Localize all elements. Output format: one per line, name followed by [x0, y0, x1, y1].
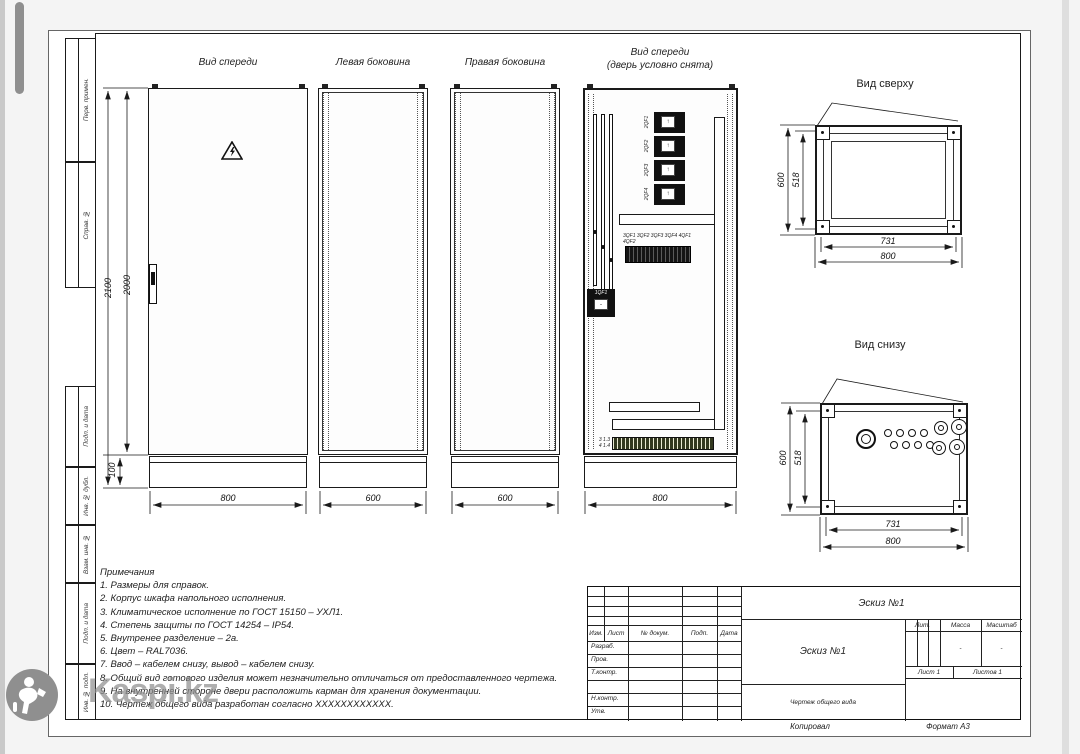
cable-gland-medium — [949, 439, 965, 455]
tb-col-data: Дата — [717, 625, 741, 641]
dim-518-bottom: 518 — [793, 441, 803, 475]
top-view — [815, 125, 962, 235]
dim-600-top: 600 — [776, 163, 786, 197]
busbar-bolt — [593, 230, 597, 234]
kopiroval-label: Копировал — [760, 722, 860, 731]
margin-label: Справ. № — [83, 210, 90, 240]
perforation-strip — [417, 93, 423, 450]
tb-doc-name: Эскиз №1 — [741, 619, 905, 684]
dim-800-top: 800 — [868, 251, 908, 261]
tb-massa-value: - — [940, 631, 981, 666]
horizontal-wiring-duct — [619, 214, 715, 225]
note-item: 3. Климатическое исполнение по ГОСТ 1515… — [100, 606, 590, 619]
terminal-block-strip — [612, 437, 714, 450]
lifting-eye — [454, 84, 460, 88]
margin-label: Перв. примен. — [83, 78, 90, 121]
tb-col-podp: Подп. — [682, 625, 717, 641]
margin-box-sprav: Справ. № — [65, 162, 96, 288]
page-right-edge[interactable] — [1062, 0, 1069, 754]
dim-518-top: 518 — [791, 163, 801, 197]
note-item: 2. Корпус шкафа напольного исполнения. — [100, 592, 590, 605]
dim-731-bottom: 731 — [873, 519, 913, 529]
margin-label: Подп. и дата — [83, 603, 90, 644]
perforation-strip — [727, 94, 733, 449]
feeder-label: 2QF1 — [644, 112, 650, 132]
margin-box-perv-primen: Перв. примен. — [65, 38, 96, 162]
feeder-label: 2QF3 — [644, 160, 650, 180]
scrollbar-handle[interactable] — [15, 2, 24, 94]
note-item: 5. Внутренее разделение – 2а. — [100, 632, 590, 645]
cable-gland-medium — [932, 441, 946, 455]
perforation-strip — [549, 93, 555, 450]
lifting-eye — [152, 84, 158, 88]
lifting-eye — [299, 84, 305, 88]
right-side-view-title: Правая боковина — [445, 57, 565, 68]
dim-100: 100 — [107, 453, 117, 487]
cable-gland — [890, 441, 898, 449]
perforation-strip — [455, 93, 461, 450]
kaspi-logo-watermark — [5, 668, 59, 722]
cable-gland — [884, 429, 892, 437]
corner-bracket — [953, 500, 967, 514]
tb-masshtab-value: - — [981, 631, 1022, 666]
cable-gland — [920, 429, 928, 437]
cable-gland — [896, 429, 904, 437]
lifting-eye — [322, 84, 328, 88]
cable-gland — [908, 429, 916, 437]
title-block: Изм. Лист № докум. Подп. Дата Разраб. Пр… — [587, 586, 1021, 720]
tb-doc-type: Чертеж общего вида — [741, 684, 905, 721]
corner-bracket — [821, 500, 835, 514]
tb-sheet: Лист 1 — [905, 666, 953, 678]
dim-800-front: 800 — [208, 493, 248, 503]
note-item: 4. Степень защиты по ГОСТ 14254 – IP54. — [100, 619, 590, 632]
cable-gland — [914, 441, 922, 449]
corner-bracket — [953, 404, 967, 418]
dim-600-bottom: 600 — [778, 441, 788, 475]
top-view-roof-plate — [831, 141, 946, 219]
busbar-L2 — [601, 114, 605, 292]
left-side-panel — [318, 88, 428, 455]
note-item: 1. Размеры для справок. — [100, 579, 590, 592]
tb-massa-label: Масса — [940, 619, 981, 631]
left-side-plinth — [319, 456, 427, 488]
vertical-wiring-duct — [714, 117, 725, 430]
front-view-title: Вид спереди — [148, 57, 308, 68]
feeder-label: 2QF4 — [644, 184, 650, 204]
margin-box-vzam-inv: Взам. инв. № — [65, 525, 96, 583]
margin-label: Взам. инв. № — [83, 534, 90, 574]
feeder-label: 2QF2 — [644, 136, 650, 156]
bottom-view — [820, 403, 968, 515]
lifting-eye — [551, 84, 557, 88]
busbar-L3 — [609, 114, 613, 298]
main-breaker-label: 1QF1 — [587, 290, 615, 296]
left-side-view-title: Левая боковина — [313, 57, 433, 68]
lifting-eye — [587, 84, 593, 88]
tb-col-list: Лист — [604, 625, 628, 641]
busbar-bolt — [601, 245, 605, 249]
dim-731-top: 731 — [868, 236, 908, 246]
margin-label: Инв. № дубл. — [83, 476, 90, 516]
corner-bracket — [816, 220, 830, 234]
format-label: Формат А3 — [898, 722, 998, 731]
note-item: 6. Цвет – RAL7036. — [100, 645, 590, 658]
internal-view-cabinet: 1QF1 - ↑ ↑ ↑ ↑ 2QF1 2QF2 2QF3 2QF4 3QF1 … — [583, 88, 738, 455]
right-side-panel — [450, 88, 560, 455]
page-left-edge — [0, 0, 5, 754]
tb-masshtab-label: Масштаб — [981, 619, 1022, 631]
din-row-label: 3QF1 3QF2 3QF3 3QF4 4QF1 4QF2 — [623, 233, 695, 245]
busbar-bolt — [609, 258, 613, 262]
cable-gland-medium — [951, 419, 967, 435]
din-rail-breakers — [625, 246, 691, 263]
tb-row-nkontr: Н.контр. — [591, 695, 619, 702]
busbar-L1 — [593, 114, 597, 286]
corner-bracket — [947, 220, 961, 234]
tb-row-tkontr: Т.контр. — [591, 669, 617, 676]
high-voltage-warning-icon — [221, 141, 243, 160]
panel-inner-frame — [322, 92, 424, 451]
feeder-breaker: ↑ — [654, 112, 685, 133]
notes-title: Примечания — [100, 566, 590, 579]
cable-gland-medium — [934, 421, 948, 435]
corner-bracket — [816, 126, 830, 140]
feeder-breaker: ↑ — [654, 136, 685, 157]
drawing-page: Перв. примен. Справ. № Подп. и дата Инв.… — [0, 0, 1080, 754]
tb-lit-label: Лит. — [905, 619, 940, 631]
tb-row-prov: Пров. — [591, 656, 608, 663]
margin-box-podp-data-2: Подп. и дата — [65, 583, 96, 664]
internal-view-subtitle: (дверь условно снята) — [580, 60, 740, 71]
tb-row-utv: Утв. — [591, 708, 606, 715]
dim-800-bottom: 800 — [873, 536, 913, 546]
bottom-view-title: Вид снизу — [820, 339, 940, 351]
margin-box-podp-data-1: Подп. и дата — [65, 386, 96, 467]
corner-bracket — [821, 404, 835, 418]
tb-col-izm: Изм. — [588, 625, 604, 641]
dim-800-internal: 800 — [640, 493, 680, 503]
cable-gland-large — [856, 429, 876, 449]
dim-600-left: 600 — [353, 493, 393, 503]
lifting-eye — [419, 84, 425, 88]
internal-view-title: Вид спереди — [580, 47, 740, 58]
note-item: 7. Ввод – кабелем снизу, вывод – кабелем… — [100, 658, 590, 671]
cable-gland — [902, 441, 910, 449]
tb-col-docum: № докум. — [628, 625, 682, 641]
tb-sheets: Листов 1 — [953, 666, 1022, 678]
horizontal-wiring-duct — [612, 419, 715, 430]
dim-600-right: 600 — [485, 493, 525, 503]
horizontal-wiring-duct — [609, 402, 700, 412]
perforation-strip — [323, 93, 329, 450]
feeder-breaker: ↑ — [654, 160, 685, 181]
dim-2000: 2000 — [122, 268, 132, 302]
main-breaker-1QF1: 1QF1 - — [587, 289, 615, 317]
margin-label: Подп. и дата — [83, 406, 90, 447]
panel-inner-frame — [454, 92, 556, 451]
dim-2100: 2100 — [103, 271, 113, 305]
tb-doc-title: Эскиз №1 — [741, 587, 1022, 619]
terminal-mark: 4 1.4 — [586, 443, 610, 449]
front-view-cabinet — [148, 88, 308, 455]
margin-box-inv-dubl: Инв. № дубл. — [65, 467, 96, 525]
lifting-eye — [729, 84, 735, 88]
front-view-plinth — [149, 456, 307, 488]
feeder-breaker: ↑ — [654, 184, 685, 205]
internal-view-plinth — [584, 456, 737, 488]
door-handle — [149, 264, 157, 304]
right-side-plinth — [451, 456, 559, 488]
corner-bracket — [947, 126, 961, 140]
top-view-title: Вид сверху — [825, 78, 945, 90]
tb-row-razrab: Разраб. — [591, 643, 615, 650]
kaspi-watermark-text: Kaspi.kz — [88, 672, 218, 711]
